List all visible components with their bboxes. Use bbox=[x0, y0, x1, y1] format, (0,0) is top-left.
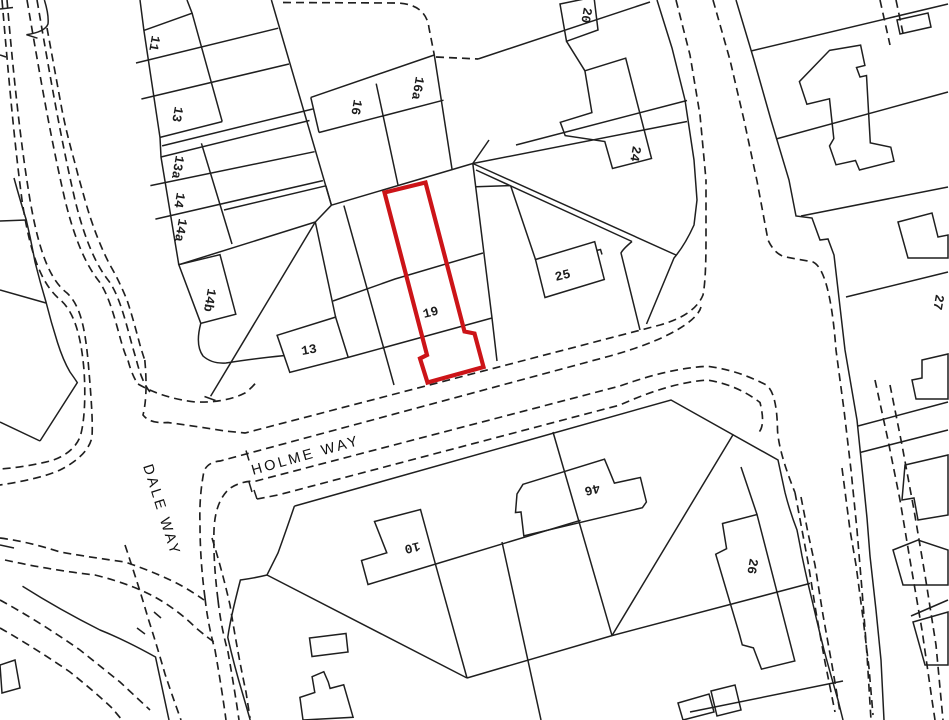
svg-text:24: 24 bbox=[626, 145, 644, 163]
svg-text:16: 16 bbox=[347, 98, 365, 116]
svg-text:27: 27 bbox=[929, 293, 946, 311]
svg-text:26: 26 bbox=[743, 557, 761, 575]
svg-text:14: 14 bbox=[170, 191, 188, 209]
svg-text:13: 13 bbox=[300, 341, 318, 359]
svg-text:13: 13 bbox=[168, 105, 186, 123]
svg-text:20: 20 bbox=[577, 6, 595, 24]
svg-text:11: 11 bbox=[145, 34, 163, 52]
